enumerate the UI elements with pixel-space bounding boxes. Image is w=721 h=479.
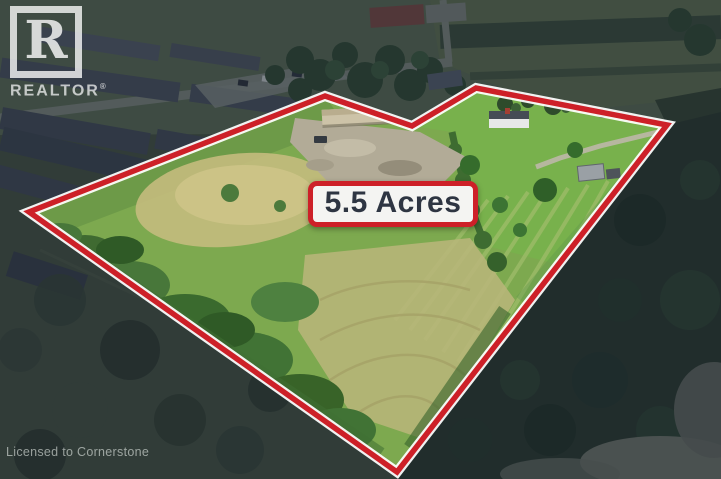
aerial-photo-canvas bbox=[0, 0, 721, 479]
house bbox=[489, 108, 529, 128]
license-watermark: Licensed to Cornerstone bbox=[6, 445, 149, 459]
aerial-listing-photo: R REALTOR® 5.5 Acres Licensed to Corners… bbox=[0, 0, 721, 479]
acreage-badge: 5.5 Acres bbox=[308, 181, 478, 227]
acreage-label: 5.5 Acres bbox=[325, 186, 462, 220]
